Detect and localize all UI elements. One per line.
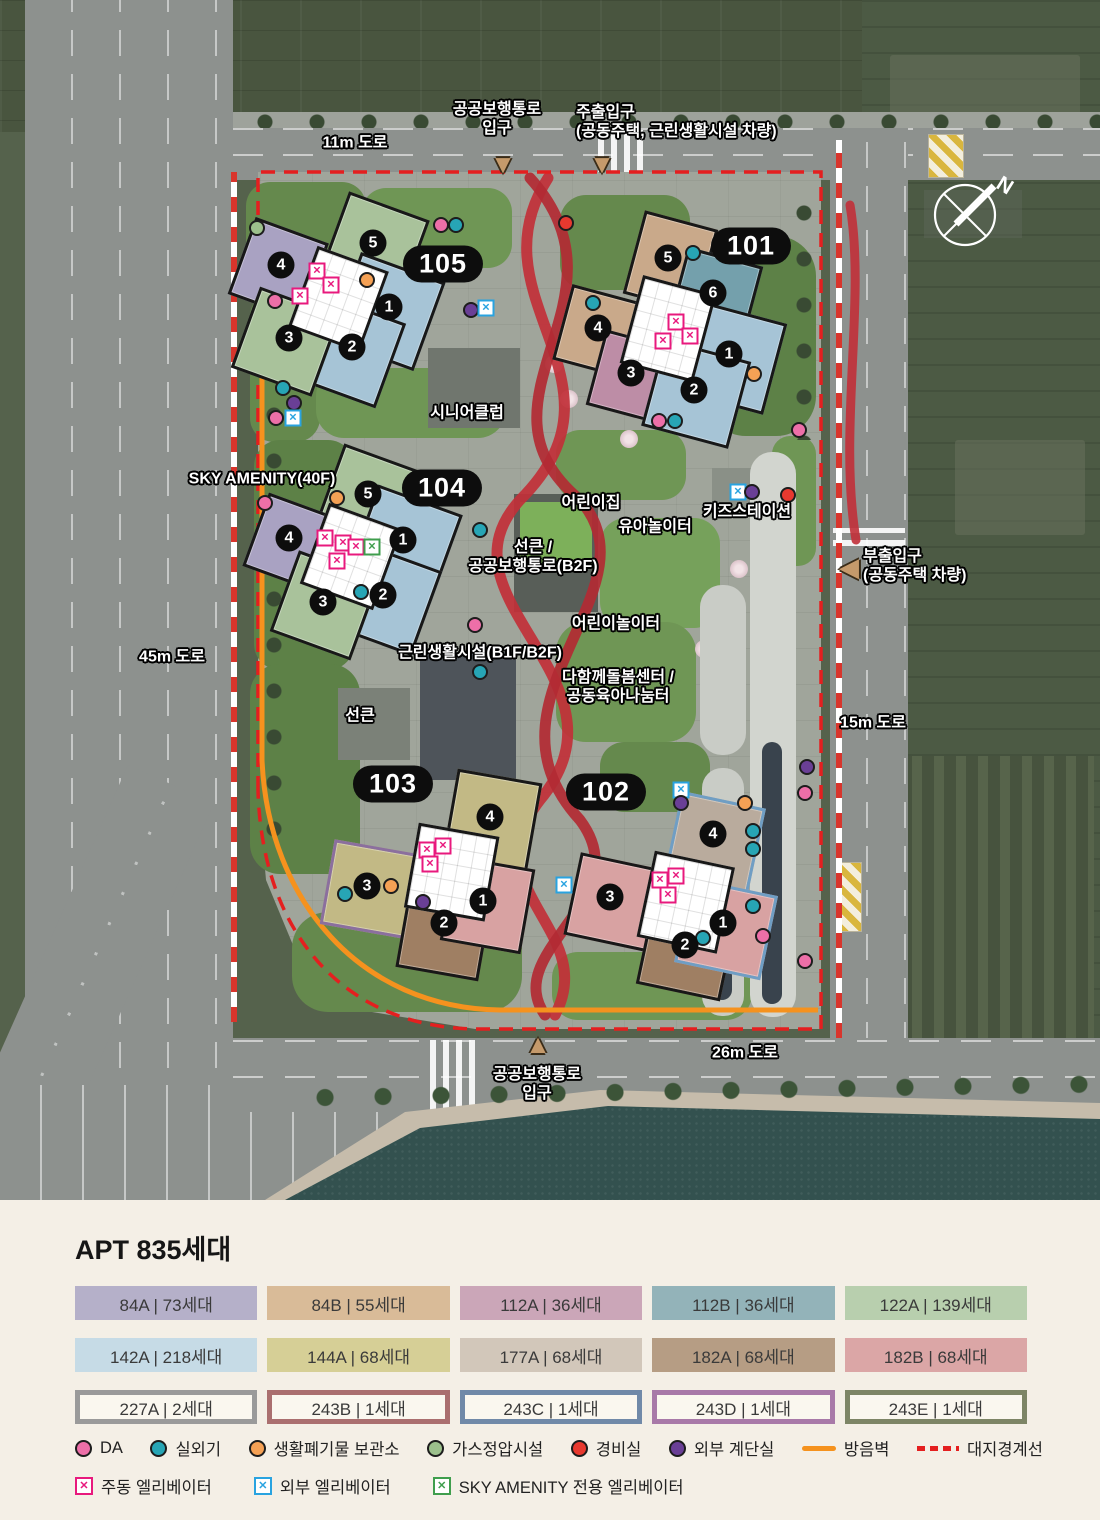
unit-chip: 243C | 1세대	[460, 1390, 642, 1424]
facility-label: 선큰	[345, 706, 374, 725]
main-elevator-marker: ✕	[668, 868, 685, 885]
da-marker	[791, 422, 807, 438]
building-pill-103: 103	[353, 766, 433, 803]
da-marker	[433, 217, 449, 233]
da-marker	[797, 953, 813, 969]
building-102-unit-4: 4	[700, 821, 727, 848]
building-101-unit-5: 5	[655, 245, 682, 272]
outdoor-unit-marker	[353, 584, 369, 600]
exterior-elevator-marker: ✕	[285, 410, 302, 427]
unit-chip: 243E | 1세대	[845, 1390, 1027, 1424]
unit-chip: 142A | 218세대	[75, 1338, 257, 1372]
building-102-unit-1: 1	[710, 910, 737, 937]
legend-elevators-row: ✕주동 엘리베이터✕외부 엘리베이터✕SKY AMENITY 전용 엘리베이터	[75, 1474, 684, 1498]
facility-label: 어린이집	[562, 493, 621, 512]
apartment-site-plan: ✕✕✕✕✕✕✕✕✕✕✕✕✕✕✕✕✕✕✕✕✕✕ 54123564312541234…	[0, 0, 1100, 1520]
building-102-unit-2: 2	[672, 932, 699, 959]
main-elevator-marker: ✕	[292, 288, 309, 305]
entrance-arrow-side-gate: ◀	[839, 554, 859, 580]
waste-storage-marker	[383, 878, 399, 894]
entrance-label-pedestrian-bottom: 공공보행통로 입구	[493, 1065, 581, 1103]
legend-label: 외부 계단실	[694, 1436, 774, 1460]
unit-chip: 182A | 68세대	[652, 1338, 834, 1372]
building-104-unit-1: 1	[390, 527, 417, 554]
sky-amenity-elevator-marker: ✕	[364, 539, 381, 556]
building-105-unit-4: 4	[268, 252, 295, 279]
gas-station-marker	[249, 220, 265, 236]
entrance-arrow-pedestrian-top: ▼	[490, 151, 516, 177]
building-pill-105: 105	[403, 246, 483, 283]
facility-label: 키즈스테이션	[703, 502, 791, 521]
main-elevator-marker: ✕	[435, 838, 452, 855]
entrance-label-side-gate: 부출입구 (공동주택 차량)	[863, 547, 966, 585]
exterior-stair-marker	[744, 484, 760, 500]
waste-storage-marker	[329, 490, 345, 506]
unit-chip: 227A | 2세대	[75, 1390, 257, 1424]
legend-dot-icon	[249, 1440, 266, 1457]
building-104-unit-3: 3	[310, 589, 337, 616]
legend-dot-icon	[571, 1440, 588, 1457]
building-103-unit-3: 3	[354, 873, 381, 900]
da-marker	[268, 410, 284, 426]
guard-post-marker	[558, 215, 574, 231]
exterior-stair-marker	[799, 759, 815, 775]
main-elevator-marker: ✕	[329, 553, 346, 570]
waste-storage-marker	[359, 272, 375, 288]
legend-panel: APT 835세대 84A | 73세대84B | 55세대112A | 36세…	[0, 1200, 1100, 1520]
legend-item: 생활폐기물 보관소	[249, 1436, 400, 1460]
building-105-unit-2: 2	[339, 334, 366, 361]
unit-chip: 243B | 1세대	[267, 1390, 449, 1424]
unit-chip: 144A | 68세대	[267, 1338, 449, 1372]
legend-title: APT 835세대	[75, 1228, 231, 1267]
building-103-unit-1: 1	[470, 888, 497, 915]
legend-dot-icon	[669, 1440, 686, 1457]
building-pill-102: 102	[566, 774, 646, 811]
unit-chip: 243D | 1세대	[652, 1390, 834, 1424]
road-label: 15m 도로	[840, 713, 906, 732]
outdoor-unit-marker	[337, 886, 353, 902]
building-102-unit-3: 3	[597, 884, 624, 911]
legend-label: DA	[100, 1439, 123, 1458]
main-elevator-marker: ✕	[323, 277, 340, 294]
unit-chip: 182B | 68세대	[845, 1338, 1027, 1372]
road-label: 45m 도로	[139, 647, 205, 666]
building-104-unit-5: 5	[355, 481, 382, 508]
main-elevator-marker: ✕	[660, 887, 677, 904]
da-marker	[267, 293, 283, 309]
legend-label: 대지경계선	[967, 1436, 1043, 1460]
outdoor-unit-marker	[685, 245, 701, 261]
facility-label: 선큰 / 공공보행통로(B2F)	[468, 538, 597, 576]
main-elevator-marker: ✕	[422, 856, 439, 873]
guard-post-marker	[780, 487, 796, 503]
legend-dot-icon	[427, 1440, 444, 1457]
building-101-unit-3: 3	[618, 360, 645, 387]
legend-item: ✕외부 엘리베이터	[254, 1474, 391, 1498]
legend-item: DA	[75, 1439, 123, 1458]
legend-item: ✕주동 엘리베이터	[75, 1474, 212, 1498]
legend-dot-icon	[150, 1440, 167, 1457]
exterior-elevator-marker: ✕	[556, 877, 573, 894]
elevator-icon: ✕	[254, 1477, 272, 1495]
facility-label: 유아놀이터	[618, 517, 692, 536]
building-102-footprint	[553, 773, 808, 1028]
legend-label: 경비실	[596, 1436, 642, 1460]
outdoor-unit-marker	[745, 841, 761, 857]
building-101-unit-2: 2	[681, 377, 708, 404]
outdoor-unit-marker	[745, 898, 761, 914]
facility-label: 다함께돌봄센터 / 공동육아나눔터	[562, 668, 674, 706]
unit-type-chips: 84A | 73세대84B | 55세대112A | 36세대112B | 36…	[75, 1286, 1027, 1424]
waste-storage-marker	[746, 366, 762, 382]
road-label: 26m 도로	[712, 1043, 778, 1062]
main-elevator-marker: ✕	[348, 539, 365, 556]
entrance-arrow-main-gate: ▼	[589, 151, 615, 177]
building-104-unit-4: 4	[276, 525, 303, 552]
outdoor-unit-marker	[472, 522, 488, 538]
da-marker	[651, 413, 667, 429]
building-101-unit-4: 4	[585, 315, 612, 342]
legend-label: 생활폐기물 보관소	[274, 1436, 400, 1460]
legend-item: 가스정압시설	[427, 1436, 543, 1460]
building-103-unit-4: 4	[477, 804, 504, 831]
unit-chip: 84A | 73세대	[75, 1286, 257, 1320]
building-pill-101: 101	[711, 228, 791, 265]
site-plan-map: ✕✕✕✕✕✕✕✕✕✕✕✕✕✕✕✕✕✕✕✕✕✕ 54123564312541234…	[0, 0, 1100, 1200]
main-elevator-marker: ✕	[317, 530, 334, 547]
exterior-elevator-marker: ✕	[478, 300, 495, 317]
legend-item: ✕SKY AMENITY 전용 엘리베이터	[433, 1474, 684, 1498]
north-compass: N	[918, 168, 1022, 260]
outdoor-unit-marker	[448, 217, 464, 233]
legend-item: 외부 계단실	[669, 1436, 774, 1460]
legend-item: 대지경계선	[917, 1436, 1043, 1460]
unit-chip: 112B | 36세대	[652, 1286, 834, 1320]
outdoor-unit-marker	[745, 823, 761, 839]
legend-label: 실외기	[175, 1436, 221, 1460]
outdoor-unit-marker	[667, 413, 683, 429]
elevator-icon: ✕	[75, 1477, 93, 1495]
legend-label: 외부 엘리베이터	[280, 1474, 391, 1498]
main-elevator-marker: ✕	[655, 333, 672, 350]
exterior-stair-marker	[415, 894, 431, 910]
elevator-icon: ✕	[433, 1477, 451, 1495]
da-marker	[257, 495, 273, 511]
da-marker	[467, 617, 483, 633]
unit-chip: 112A | 36세대	[460, 1286, 642, 1320]
legend-label: SKY AMENITY 전용 엘리베이터	[459, 1474, 684, 1498]
road-label: 11m 도로	[322, 133, 387, 152]
legend-label: 가스정압시설	[452, 1436, 543, 1460]
outdoor-unit-marker	[472, 664, 488, 680]
facility-label: 시니어클럽	[430, 403, 504, 422]
building-101-unit-6: 6	[700, 280, 727, 307]
legend-item: 방음벽	[802, 1436, 890, 1460]
legend-dot-icon	[75, 1440, 92, 1457]
soundproof-wall-icon	[802, 1446, 836, 1451]
building-pill-104: 104	[402, 470, 482, 507]
outdoor-unit-marker	[275, 380, 291, 396]
building-105-unit-1: 1	[376, 294, 403, 321]
outdoor-unit-marker	[585, 295, 601, 311]
legend-label: 방음벽	[844, 1436, 890, 1460]
entrance-label-main-gate: 주출입구 (공동주택, 근린생활시설 차량)	[576, 103, 777, 141]
exterior-stair-marker	[673, 795, 689, 811]
main-elevator-marker: ✕	[682, 328, 699, 345]
facility-label: 어린이놀이터	[572, 614, 660, 633]
building-104-unit-2: 2	[370, 582, 397, 609]
unit-chip: 84B | 55세대	[267, 1286, 449, 1320]
building-103-unit-2: 2	[431, 910, 458, 937]
unit-chip: 122A | 139세대	[845, 1286, 1027, 1320]
legend-item: 실외기	[150, 1436, 221, 1460]
da-marker	[755, 928, 771, 944]
legend-label: 주동 엘리베이터	[101, 1474, 212, 1498]
entrance-arrow-pedestrian-bottom: ▲	[525, 1031, 551, 1057]
legend-markers-row: DA실외기생활폐기물 보관소가스정압시설경비실외부 계단실방음벽대지경계선	[75, 1436, 1043, 1460]
entrance-label-pedestrian-top: 공공보행통로 입구	[453, 100, 541, 138]
facility-label: 근린생활시설(B1F/B2F)	[398, 643, 562, 662]
da-marker	[797, 785, 813, 801]
legend-item: 경비실	[571, 1436, 642, 1460]
waste-storage-marker	[737, 795, 753, 811]
building-105-unit-3: 3	[276, 325, 303, 352]
building-105-unit-5: 5	[360, 230, 387, 257]
boundary-dash-icon	[917, 1446, 959, 1451]
unit-chip: 177A | 68세대	[460, 1338, 642, 1372]
building-101-unit-1: 1	[716, 341, 743, 368]
facility-label: SKY AMENITY(40F)	[189, 469, 336, 488]
